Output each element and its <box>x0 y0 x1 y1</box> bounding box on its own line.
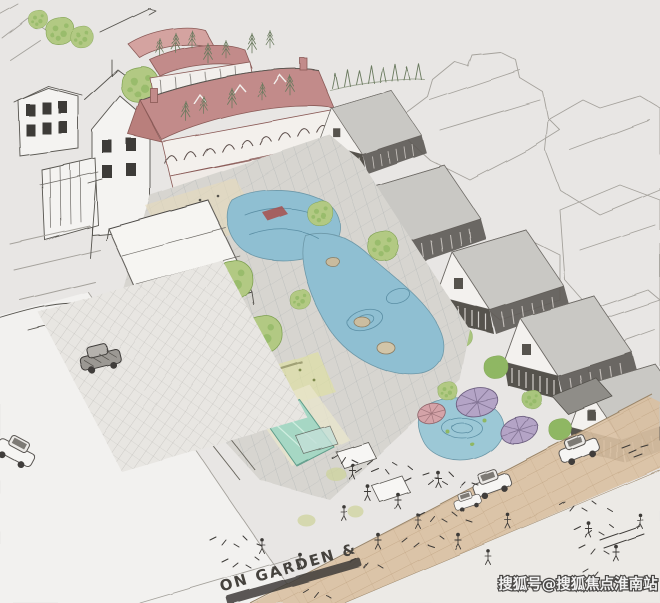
pond-rock <box>354 317 370 327</box>
watermark-text: 搜狐号@搜狐焦点淮南站 <box>498 575 658 593</box>
pond-rock <box>377 342 395 354</box>
pond-rock <box>326 258 340 267</box>
sketch-canvas: ON GARDEN & 搜狐号@搜狐焦点淮南站 <box>0 0 660 603</box>
sketch-rendering: ON GARDEN & 搜狐号@搜狐焦点淮南站 <box>0 0 660 603</box>
